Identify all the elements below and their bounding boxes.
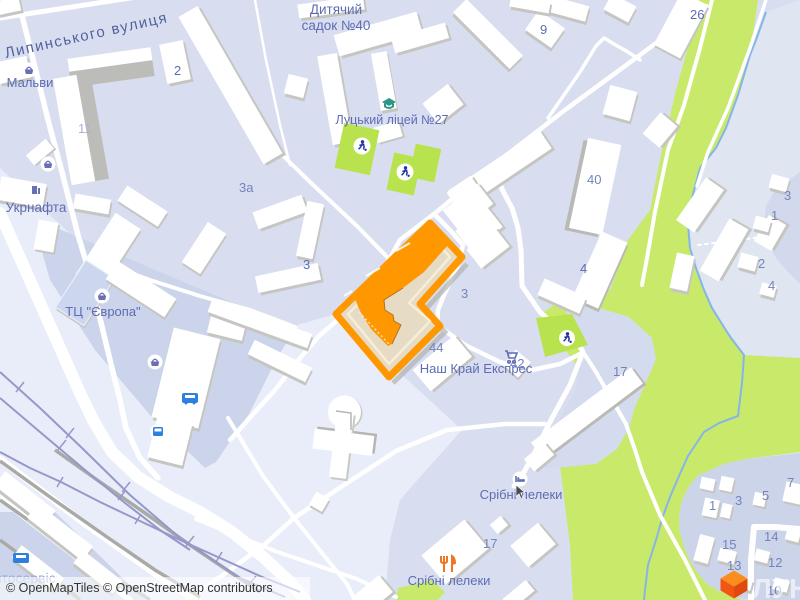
svg-text:14: 14 — [764, 529, 778, 544]
svg-text:3а: 3а — [239, 180, 254, 195]
svg-text:11: 11 — [78, 121, 92, 136]
svg-text:15: 15 — [722, 537, 736, 552]
svg-text:Срібні лелеки: Срібні лелеки — [408, 573, 491, 588]
svg-text:1: 1 — [771, 208, 778, 223]
svg-text:40: 40 — [587, 172, 601, 187]
svg-text:3: 3 — [735, 493, 742, 508]
svg-text:3: 3 — [303, 257, 310, 272]
svg-text:Укрнафта: Укрнафта — [6, 200, 67, 215]
svg-text:44: 44 — [429, 340, 443, 355]
svg-text:ТЦ "Європа": ТЦ "Європа" — [65, 304, 141, 319]
svg-text:Дитячий: Дитячий — [310, 2, 362, 17]
svg-text:17: 17 — [483, 536, 497, 551]
svg-text:4: 4 — [768, 278, 775, 293]
svg-text:26: 26 — [690, 7, 704, 22]
svg-text:Луцький ліцей №27: Луцький ліцей №27 — [336, 113, 449, 127]
svg-text:3: 3 — [784, 188, 791, 203]
svg-text:3: 3 — [461, 286, 468, 301]
svg-text:4: 4 — [580, 261, 587, 276]
svg-text:1: 1 — [709, 498, 716, 513]
svg-text:2: 2 — [758, 256, 765, 271]
svg-text:садок №40: садок №40 — [302, 18, 371, 33]
svg-text:© OpenMapTiles © OpenStreetMap: © OpenMapTiles © OpenStreetMap contribut… — [6, 581, 273, 595]
svg-text:9: 9 — [540, 22, 547, 37]
svg-text:7: 7 — [787, 475, 794, 490]
svg-text:12: 12 — [768, 555, 782, 570]
svg-text:ЛУН: ЛУН — [752, 573, 800, 600]
svg-text:17: 17 — [613, 364, 627, 379]
svg-text:5: 5 — [762, 488, 769, 503]
svg-text:2: 2 — [174, 63, 181, 78]
